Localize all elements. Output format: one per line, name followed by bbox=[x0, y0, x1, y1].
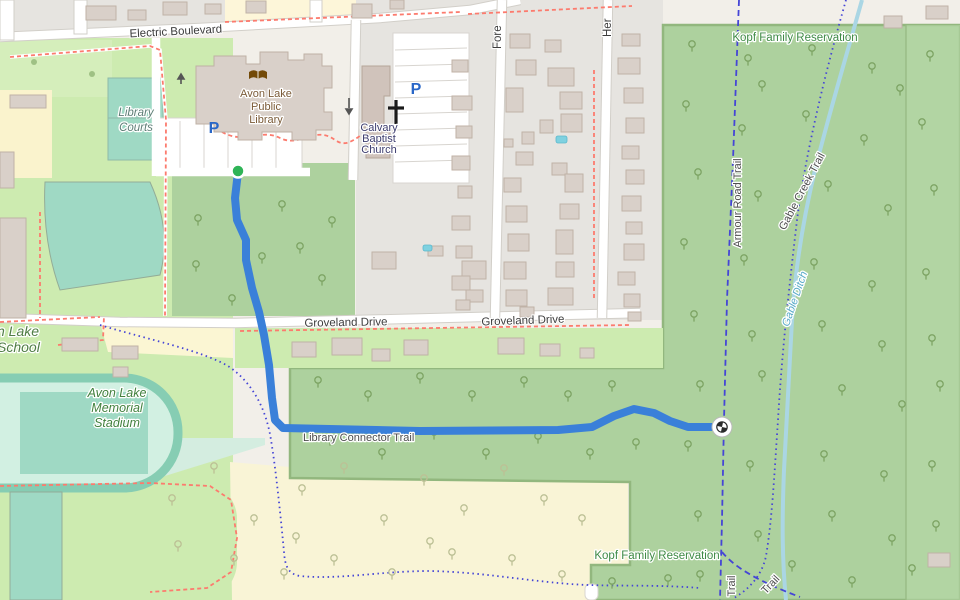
route-start-marker[interactable] bbox=[232, 165, 245, 178]
school-label-line2: School bbox=[0, 339, 41, 355]
library-courts-label-line1: Library bbox=[118, 107, 154, 119]
map-canvas[interactable]: P P Electric Boulevard Fore Her Grovelan… bbox=[0, 0, 960, 600]
parking-icon-library: P bbox=[209, 120, 220, 137]
road-stub-1 bbox=[74, 0, 87, 34]
trail-label-vertical: Trail bbox=[726, 576, 738, 597]
fore-street-label: Fore bbox=[492, 25, 504, 49]
white-structure bbox=[585, 584, 598, 600]
school-label-line1: n Lake bbox=[0, 323, 39, 339]
library-green-block bbox=[172, 163, 355, 316]
road-stub-3 bbox=[0, 0, 14, 40]
pitch-bottom-left bbox=[10, 492, 62, 600]
stadium-label-line2: Memorial bbox=[91, 401, 144, 415]
groveland-drive-label-west: Groveland Drive bbox=[304, 316, 387, 329]
armour-road-trail-label: Armour Road Trail bbox=[732, 158, 744, 247]
parking-icon-church: P bbox=[411, 81, 422, 98]
library-connector-trail-label: Library Connector Trail bbox=[303, 432, 414, 444]
library-label-line1: Avon Lake bbox=[240, 88, 292, 100]
map-svg[interactable]: P P Electric Boulevard Fore Her Grovelan… bbox=[0, 0, 960, 600]
library-label-line3: Library bbox=[249, 114, 283, 126]
her-street-road bbox=[602, 0, 608, 318]
library-courts-label-line2: Courts bbox=[119, 122, 153, 134]
her-street-label: Her bbox=[602, 18, 614, 37]
library-label-line2: Public bbox=[251, 101, 281, 113]
church-side-street bbox=[353, 20, 356, 180]
baseball-field bbox=[45, 182, 165, 290]
green-field-bottom-left bbox=[135, 481, 237, 600]
scrub-area bbox=[230, 462, 628, 600]
forest-strip-east bbox=[906, 25, 960, 600]
stadium-label-line3: Stadium bbox=[94, 416, 140, 430]
kopf-reservation-label-top: Kopf Family Reservation bbox=[732, 32, 857, 44]
church-label-line3: Church bbox=[361, 144, 396, 156]
kopf-reservation-label-bottom: Kopf Family Reservation bbox=[594, 550, 719, 562]
stadium-label-line1: Avon Lake bbox=[87, 386, 147, 400]
